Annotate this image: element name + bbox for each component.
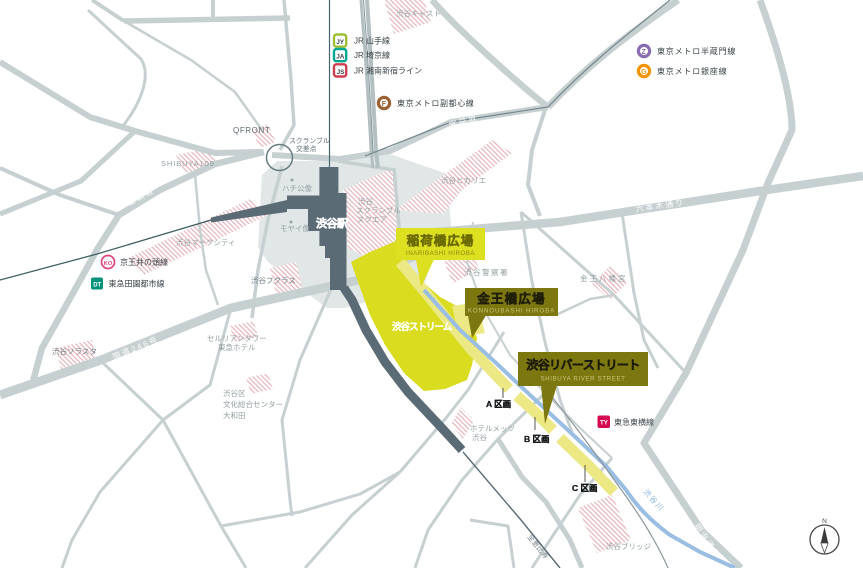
svg-text:TY: TY xyxy=(600,420,609,427)
svg-text:INARIBASHI HIROBA: INARIBASHI HIROBA xyxy=(406,250,475,257)
svg-text:京王井の頭線: 京王井の頭線 xyxy=(120,257,168,267)
svg-text:スクランブル: スクランブル xyxy=(289,136,330,145)
svg-text:F: F xyxy=(382,101,387,108)
svg-text:C 区画: C 区画 xyxy=(572,483,598,493)
svg-text:東急田園都市線: 東急田園都市線 xyxy=(109,279,165,289)
svg-text:大和田: 大和田 xyxy=(223,410,246,420)
svg-text:JR 湘南新宿ライン: JR 湘南新宿ライン xyxy=(354,65,422,75)
svg-text:稲荷橋広場: 稲荷橋広場 xyxy=(407,233,475,248)
svg-text:渋谷マークシティ: 渋谷マークシティ xyxy=(176,237,236,247)
svg-text:渋谷: 渋谷 xyxy=(472,432,487,442)
svg-text:渋谷リバーストリート: 渋谷リバーストリート xyxy=(526,357,639,372)
svg-text:KO: KO xyxy=(104,261,113,267)
svg-text:東京メトロ銀座線: 東京メトロ銀座線 xyxy=(657,66,727,76)
svg-text:JA: JA xyxy=(336,54,345,61)
svg-text:G: G xyxy=(641,69,647,76)
svg-text:モヤイ像: モヤイ像 xyxy=(280,223,310,233)
svg-text:ハチ公像: ハチ公像 xyxy=(282,183,312,193)
svg-text:SHIBUYA RIVER STREET: SHIBUYA RIVER STREET xyxy=(540,376,625,383)
svg-text:渋谷区: 渋谷区 xyxy=(223,388,246,398)
svg-text:JS: JS xyxy=(337,69,346,76)
svg-text:渋谷: 渋谷 xyxy=(358,196,373,206)
svg-text:東京メトロ副都心線: 東京メトロ副都心線 xyxy=(397,98,474,108)
svg-text:B 区画: B 区画 xyxy=(524,434,550,444)
svg-text:ホテルメッツ: ホテルメッツ xyxy=(470,424,515,433)
svg-text:交差点: 交差点 xyxy=(296,144,317,153)
svg-text:SHIBUYA109: SHIBUYA109 xyxy=(161,159,215,168)
svg-text:渋谷警察署: 渋谷警察署 xyxy=(464,267,509,277)
svg-text:東急ホテル: 東急ホテル xyxy=(218,342,256,352)
svg-text:N: N xyxy=(822,518,827,525)
svg-text:KONNOUBASHI HIROBA: KONNOUBASHI HIROBA xyxy=(468,308,555,315)
svg-text:Z: Z xyxy=(642,49,647,56)
svg-text:渋谷ストリーム: 渋谷ストリーム xyxy=(392,321,453,333)
svg-text:JY: JY xyxy=(336,39,345,46)
svg-text:A 区画: A 区画 xyxy=(486,399,511,409)
svg-text:セルリアンタワー: セルリアンタワー xyxy=(207,334,267,343)
svg-text:JR 埼京線: JR 埼京線 xyxy=(354,50,390,60)
svg-text:JR 山手線: JR 山手線 xyxy=(354,36,390,46)
svg-text:東京メトロ半蔵門線: 東京メトロ半蔵門線 xyxy=(657,46,736,56)
svg-text:渋谷キャスト: 渋谷キャスト xyxy=(396,8,441,18)
svg-text:スクランブル: スクランブル xyxy=(356,205,401,215)
svg-text:渋谷ソラスタ: 渋谷ソラスタ xyxy=(52,346,97,356)
svg-text:QFRONT: QFRONT xyxy=(233,126,270,135)
svg-text:金王八幡宮: 金王八幡宮 xyxy=(580,273,628,283)
svg-text:渋谷フクラス: 渋谷フクラス xyxy=(251,275,296,285)
svg-text:文化総合センター: 文化総合センター xyxy=(223,399,283,409)
svg-text:渋谷駅: 渋谷駅 xyxy=(316,216,348,230)
svg-text:渋谷ヒカリエ: 渋谷ヒカリエ xyxy=(441,175,486,185)
svg-text:金王橋広場: 金王橋広場 xyxy=(476,291,546,306)
svg-text:渋谷ブリッジ: 渋谷ブリッジ xyxy=(606,541,651,551)
svg-text:東急東横線: 東急東横線 xyxy=(614,417,654,427)
svg-text:DT: DT xyxy=(93,282,101,288)
svg-text:スクエア: スクエア xyxy=(357,215,387,224)
